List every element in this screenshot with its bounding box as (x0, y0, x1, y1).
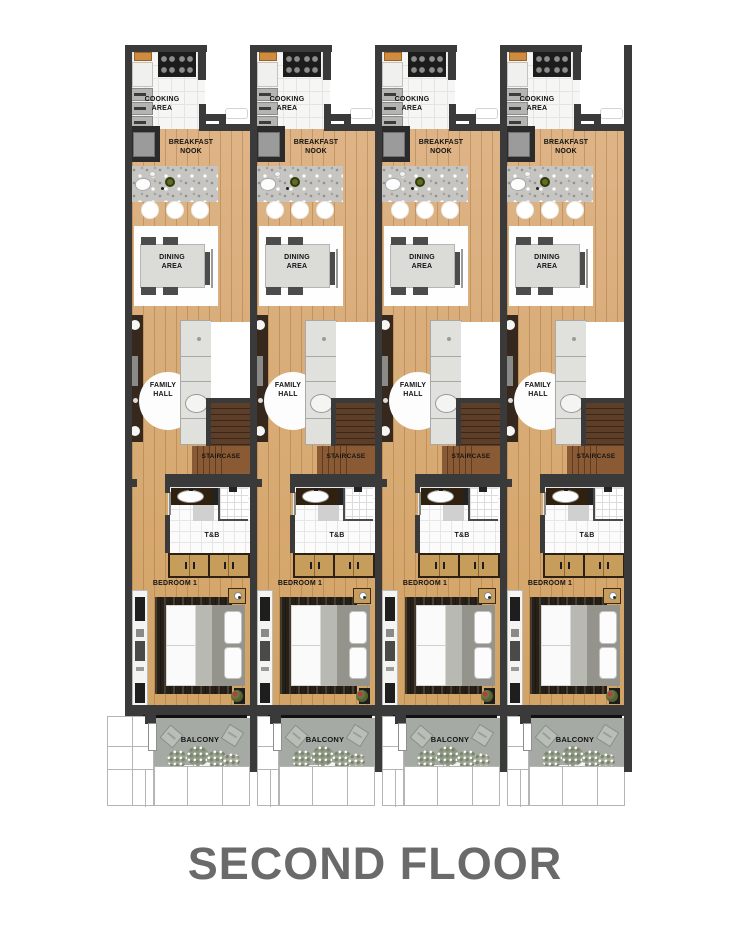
cabinet-knob (322, 337, 326, 341)
grid-line (562, 767, 563, 805)
pillow (224, 611, 242, 644)
wall (199, 124, 250, 131)
potted-plant (606, 690, 618, 702)
bar-stool (391, 201, 409, 219)
wardrobe (543, 553, 625, 578)
dining-chair (538, 237, 553, 245)
potted-plant (356, 690, 368, 702)
dining-end-chair (330, 252, 335, 285)
wardrobe-handle (232, 562, 234, 569)
balcony-label: BALCONY (420, 735, 480, 744)
dining-chair (163, 287, 178, 295)
stove-burners (535, 54, 551, 75)
dining-chair (516, 287, 531, 295)
wall (540, 487, 545, 493)
stair-upper-flight (586, 403, 625, 446)
dining-chair (288, 237, 303, 245)
cabinet-divider (431, 356, 461, 357)
wall (290, 487, 295, 493)
grid-line (145, 769, 146, 807)
family-hall-label: FAMILY HALL (258, 381, 318, 399)
bedside-dresser (507, 590, 523, 706)
dresser-item (385, 683, 395, 703)
breakfast-nook-label: BREAKFAST NOOK (165, 138, 217, 156)
cabinet-knob (447, 337, 451, 341)
bar-stool (266, 201, 284, 219)
counter-plant (540, 177, 550, 187)
bar-stool (191, 201, 209, 219)
counter-decor (536, 187, 539, 190)
dresser-item (510, 683, 520, 703)
counter-dish (524, 171, 531, 177)
shower-fixture (229, 487, 237, 492)
wardrobe-handle (560, 562, 562, 569)
dining-area-label: DINING AREA (142, 253, 202, 271)
wall (165, 474, 250, 487)
wardrobe-handle (185, 562, 187, 569)
refrigerator (382, 62, 403, 87)
dining-area-label: DINING AREA (267, 253, 327, 271)
bar-stool (566, 201, 584, 219)
utility-shaft-interior (508, 132, 530, 157)
cabinet-divider (306, 356, 336, 357)
bar-stool (316, 201, 334, 219)
family-hall-label: FAMILY HALL (383, 381, 443, 399)
dresser-tv (510, 597, 520, 621)
grid-line (133, 769, 153, 770)
dining-chair (516, 237, 531, 245)
bed-blanket (571, 605, 587, 686)
table-lamp (484, 592, 492, 600)
dresser-item (261, 629, 269, 637)
counter-decor (161, 187, 164, 190)
pillow (599, 647, 617, 679)
kitchen-shelf (384, 52, 402, 61)
potted-plant (231, 690, 243, 702)
wall (324, 124, 375, 131)
dining-sideboard (336, 249, 338, 288)
outdoor-ledge (350, 108, 373, 119)
bath-mat (193, 505, 214, 521)
stove-burners (285, 54, 301, 75)
floor-plan: COOKING AREA BREAKFAST NOOK DINING AREA … (0, 0, 750, 810)
wall (250, 45, 332, 52)
wall (375, 45, 457, 52)
counter-decor (286, 187, 289, 190)
stove-burners (553, 54, 569, 75)
stair-upper-flight (336, 403, 375, 446)
cooking-area-label: COOKING AREA (515, 95, 559, 113)
shower-area (593, 488, 623, 521)
townhouse-unit: COOKING AREA BREAKFAST NOOK DINING AREA … (125, 0, 257, 810)
wall (415, 487, 420, 493)
bar-stool (166, 201, 184, 219)
wardrobe-divider (208, 555, 210, 576)
wardrobe-divider (583, 555, 585, 576)
outdoor-ledge (475, 108, 498, 119)
vanity-sink (177, 490, 204, 503)
pillow (349, 611, 367, 644)
stove-burners (428, 54, 444, 75)
stove-burners (178, 54, 194, 75)
wardrobe-door-seam (478, 555, 479, 576)
dining-area-label: DINING AREA (517, 253, 577, 271)
nightstand (603, 588, 621, 604)
wall (290, 474, 375, 487)
wardrobe-door-seam (603, 555, 604, 576)
kitchen-shelf (509, 52, 527, 61)
pavement-grid (154, 766, 250, 806)
dining-chair (391, 287, 406, 295)
vanity-sink (302, 490, 329, 503)
dining-chair (288, 287, 303, 295)
utility-shaft-interior (383, 132, 405, 157)
dining-chair (413, 237, 428, 245)
bath-mat (568, 505, 589, 521)
dresser-item (260, 641, 270, 661)
family-hall-label: FAMILY HALL (508, 381, 568, 399)
bath-mat (318, 505, 339, 521)
nightstand (353, 588, 371, 604)
vanity-sink (552, 490, 579, 503)
dining-chair (266, 287, 281, 295)
dresser-item (386, 629, 394, 637)
kitchen-shelf (134, 52, 152, 61)
staircase-label: STAIRCASE (315, 452, 377, 461)
dresser-item (511, 629, 519, 637)
bar-stool (516, 201, 534, 219)
wardrobe-door-seam (314, 555, 315, 576)
cabinet-divider (181, 356, 211, 357)
dresser-item (135, 683, 145, 703)
grid-line (270, 769, 271, 807)
balcony-label: BALCONY (545, 735, 605, 744)
wardrobe-handle (349, 562, 351, 569)
wall (581, 398, 625, 403)
wardrobe-handle (443, 562, 445, 569)
pillow (474, 611, 492, 644)
stair-void (336, 322, 375, 399)
pillow (599, 611, 617, 644)
dresser-tv (260, 597, 270, 621)
grid-line (437, 767, 438, 805)
vanity-sink (427, 490, 454, 503)
plant-foliage (312, 746, 334, 766)
wardrobe-door-seam (189, 555, 190, 576)
wardrobe-handle (568, 562, 570, 569)
sliding-door-panel (398, 723, 407, 751)
bar-stool (416, 201, 434, 219)
kitchen-shelf (259, 52, 277, 61)
wall (500, 45, 507, 772)
counter-plant (415, 177, 425, 187)
nightstand (228, 588, 246, 604)
bedside-dresser (257, 590, 273, 706)
wall (456, 398, 461, 446)
sink-faucet (314, 488, 318, 491)
stove-burners (410, 54, 426, 75)
stair-upper-flight (461, 403, 500, 446)
wall (331, 398, 375, 403)
dresser-item (136, 667, 144, 671)
dresser-item (386, 667, 394, 671)
wall (415, 515, 420, 553)
wardrobe-handle (474, 562, 476, 569)
bed-sheet (166, 605, 196, 686)
stair-void (586, 322, 625, 399)
stair-void (211, 322, 250, 399)
bath-mat (443, 505, 464, 521)
wardrobe-handle (482, 562, 484, 569)
staircase-label: STAIRCASE (190, 452, 252, 461)
bedroom-label: BEDROOM 1 (395, 579, 455, 588)
staircase-label: STAIRCASE (565, 452, 627, 461)
bed-sheet (541, 605, 571, 686)
dining-sideboard (211, 249, 213, 288)
wall (375, 45, 382, 772)
wardrobe-door-seam (564, 555, 565, 576)
bedside-dresser (382, 590, 398, 706)
cabinet-divider (556, 356, 586, 357)
wall (125, 45, 132, 718)
breakfast-nook-label: BREAKFAST NOOK (290, 138, 342, 156)
cooking-area-label: COOKING AREA (265, 95, 309, 113)
cabinet-knob (572, 337, 576, 341)
wardrobe-handle (357, 562, 359, 569)
wardrobe-door-seam (353, 555, 354, 576)
wall (198, 45, 206, 80)
grid-line (395, 769, 396, 807)
bedroom-label: BEDROOM 1 (520, 579, 580, 588)
bar-stool (141, 201, 159, 219)
cooking-area-label: COOKING AREA (390, 95, 434, 113)
wardrobe-divider (333, 555, 335, 576)
grid-line (108, 769, 132, 770)
wall (129, 479, 137, 487)
refrigerator (132, 62, 153, 87)
cabinet-knob (197, 337, 201, 341)
bed-sheet (416, 605, 446, 686)
refrigerator (257, 62, 278, 87)
bedroom-label: BEDROOM 1 (145, 579, 205, 588)
grid-line (258, 769, 278, 770)
townhouse-unit: COOKING AREA BREAKFAST NOOK DINING AREA … (250, 0, 382, 810)
stove-cooktop (533, 52, 571, 77)
grid-line (508, 769, 528, 770)
bed-blanket (321, 605, 337, 686)
wall (415, 474, 500, 487)
wall (624, 45, 632, 772)
wardrobe-door-seam (439, 555, 440, 576)
wall (165, 487, 170, 493)
outdoor-ledge (600, 108, 623, 119)
townhouse-unit: COOKING AREA BREAKFAST NOOK DINING AREA … (375, 0, 507, 810)
wardrobe-handle (318, 562, 320, 569)
floor-title: SECOND FLOOR (0, 838, 750, 890)
grid-line (312, 767, 313, 805)
dresser-item (385, 641, 395, 661)
dining-chair (538, 287, 553, 295)
breakfast-nook-label: BREAKFAST NOOK (415, 138, 467, 156)
sink-faucet (439, 488, 443, 491)
table-lamp (359, 592, 367, 600)
wall (125, 45, 207, 52)
outdoor-ledge (225, 108, 248, 119)
wall (456, 398, 500, 403)
dresser-item (260, 683, 270, 703)
stove-burners (303, 54, 319, 75)
dresser-item (261, 667, 269, 671)
dresser-tv (385, 597, 395, 621)
sliding-door-panel (148, 723, 157, 751)
bed-blanket (446, 605, 462, 686)
wall (573, 45, 581, 80)
wardrobe (293, 553, 375, 578)
grid-line (108, 746, 132, 747)
stove-cooktop (158, 52, 196, 77)
wall (331, 398, 336, 446)
toilet-bath-label: T&B (570, 531, 604, 540)
dining-chair (266, 237, 281, 245)
cooking-area-label: COOKING AREA (140, 95, 184, 113)
counter-dish (274, 171, 281, 177)
bedroom-label: BEDROOM 1 (270, 579, 330, 588)
wardrobe-divider (458, 555, 460, 576)
wall (254, 479, 262, 487)
dresser-item (511, 667, 519, 671)
family-hall-label: FAMILY HALL (133, 381, 193, 399)
utility-shaft-interior (258, 132, 280, 157)
wardrobe-door-seam (228, 555, 229, 576)
wall (448, 45, 456, 80)
shower-fixture (479, 487, 487, 492)
grid-line (472, 767, 473, 805)
townhouse-unit: COOKING AREA BREAKFAST NOOK DINING AREA … (500, 0, 632, 810)
wardrobe (418, 553, 500, 578)
shower-fixture (604, 487, 612, 492)
table-lamp (234, 592, 242, 600)
dining-sideboard (461, 249, 463, 288)
dresser-item (510, 641, 520, 661)
shower-fixture (354, 487, 362, 492)
counter-plant (290, 177, 300, 187)
dining-end-chair (455, 252, 460, 285)
bedside-dresser (132, 590, 148, 706)
bar-stool (541, 201, 559, 219)
wardrobe-handle (193, 562, 195, 569)
wardrobe-handle (310, 562, 312, 569)
dining-chair (413, 287, 428, 295)
plant-foliage (562, 746, 584, 766)
wall (206, 398, 250, 403)
plant-foliage (187, 746, 209, 766)
wall (323, 45, 331, 80)
grid-line (383, 769, 403, 770)
pillow (349, 647, 367, 679)
pavement-grid (107, 716, 133, 806)
dining-end-chair (205, 252, 210, 285)
sliding-door-panel (273, 723, 282, 751)
counter-plant (165, 177, 175, 187)
bar-stool (441, 201, 459, 219)
dining-chair (391, 237, 406, 245)
table-lamp (609, 592, 617, 600)
wardrobe-handle (599, 562, 601, 569)
grid-line (597, 767, 598, 805)
nightstand (478, 588, 496, 604)
shower-area (218, 488, 248, 521)
stair-upper-flight (211, 403, 250, 446)
refrigerator (507, 62, 528, 87)
dining-sideboard (586, 249, 588, 288)
balcony-label: BALCONY (170, 735, 230, 744)
wall (504, 479, 512, 487)
counter-dish (149, 171, 156, 177)
shower-area (343, 488, 373, 521)
dresser-item (135, 641, 145, 661)
wardrobe-handle (607, 562, 609, 569)
grid-line (187, 767, 188, 805)
dining-chair (141, 287, 156, 295)
sink-faucet (564, 488, 568, 491)
bar-stool (291, 201, 309, 219)
wall (449, 124, 500, 131)
pavement-grid (404, 766, 500, 806)
toilet-bath-label: T&B (320, 531, 354, 540)
sliding-door-panel (523, 723, 532, 751)
dining-chair (163, 237, 178, 245)
dining-area-label: DINING AREA (392, 253, 452, 271)
stove-burners (160, 54, 176, 75)
stair-void (461, 322, 500, 399)
plant-foliage (437, 746, 459, 766)
pillow (224, 647, 242, 679)
potted-plant (481, 690, 493, 702)
wardrobe (168, 553, 250, 578)
stove-cooktop (283, 52, 321, 77)
dresser-tv (135, 597, 145, 621)
stove-cooktop (408, 52, 446, 77)
pavement-grid (529, 766, 625, 806)
wall (379, 479, 387, 487)
grid-line (520, 769, 521, 807)
utility-shaft-interior (133, 132, 155, 157)
grid-line (222, 767, 223, 805)
wall (540, 515, 545, 553)
bed-blanket (196, 605, 212, 686)
balcony-label: BALCONY (295, 735, 355, 744)
pillow (474, 647, 492, 679)
sink-faucet (189, 488, 193, 491)
counter-dish (399, 171, 406, 177)
dresser-item (136, 629, 144, 637)
wardrobe-handle (435, 562, 437, 569)
toilet-bath-label: T&B (445, 531, 479, 540)
staircase-label: STAIRCASE (440, 452, 502, 461)
bed-sheet (291, 605, 321, 686)
wardrobe-handle (224, 562, 226, 569)
grid-line (347, 767, 348, 805)
wall (165, 515, 170, 553)
wall (581, 398, 586, 446)
wall (540, 474, 625, 487)
shower-area (468, 488, 498, 521)
counter-decor (411, 187, 414, 190)
pavement-grid (279, 766, 375, 806)
wall (290, 515, 295, 553)
dining-chair (141, 237, 156, 245)
breakfast-nook-label: BREAKFAST NOOK (540, 138, 592, 156)
